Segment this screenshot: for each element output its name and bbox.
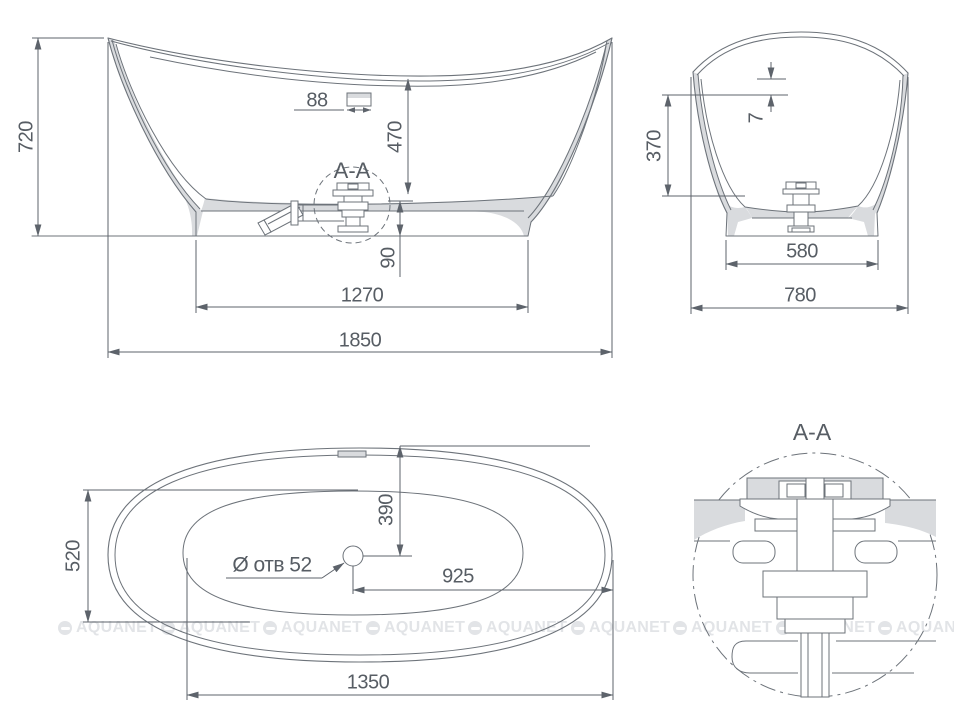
front-view: 720 88 470 A-A 90 1270 [15, 38, 612, 358]
side-dimensions: 7 370 580 780 [643, 62, 908, 314]
drain-section-detail [694, 478, 936, 697]
dim-overall-width: 780 [784, 284, 816, 306]
dim-overall-height: 720 [15, 121, 37, 153]
dim-overflow-width: 88 [306, 89, 328, 111]
overflow-outlet [347, 93, 371, 106]
dim-drain-from-top-edge: 390 [375, 494, 397, 526]
drain-hole [343, 546, 363, 566]
dim-rim-step: 7 [745, 112, 767, 123]
section-label: A-A [334, 158, 371, 183]
tub-body-plan [108, 448, 612, 662]
technical-drawing-canvas: AQUANET AQUANET AQUANET AQUANET AQUANET … [0, 0, 954, 719]
detail-view: A-A [693, 419, 937, 697]
dim-drain-from-end: 925 [442, 565, 474, 587]
dim-depth: 370 [643, 130, 665, 162]
tub-body-front [32, 38, 612, 236]
dim-base-width: 580 [786, 240, 818, 262]
side-view: 7 370 580 780 [643, 32, 908, 314]
drain-hole-label: Ø отв 52 [232, 554, 311, 577]
dim-base-length-plan: 1350 [347, 671, 390, 693]
drain-assembly-side [783, 182, 819, 232]
drawing-svg: 720 88 470 A-A 90 1270 [0, 0, 954, 719]
dim-depth-to-floor: 470 [384, 121, 406, 153]
detail-title: A-A [793, 419, 832, 445]
dim-drain-height: 90 [377, 247, 399, 269]
dim-overall-length: 1850 [339, 329, 382, 351]
plan-view: 520 390 Ø отв 52 925 1350 [62, 446, 613, 700]
dim-inner-width: 520 [62, 540, 84, 572]
overflow-slot [338, 451, 366, 457]
dim-base-length: 1270 [341, 284, 384, 306]
